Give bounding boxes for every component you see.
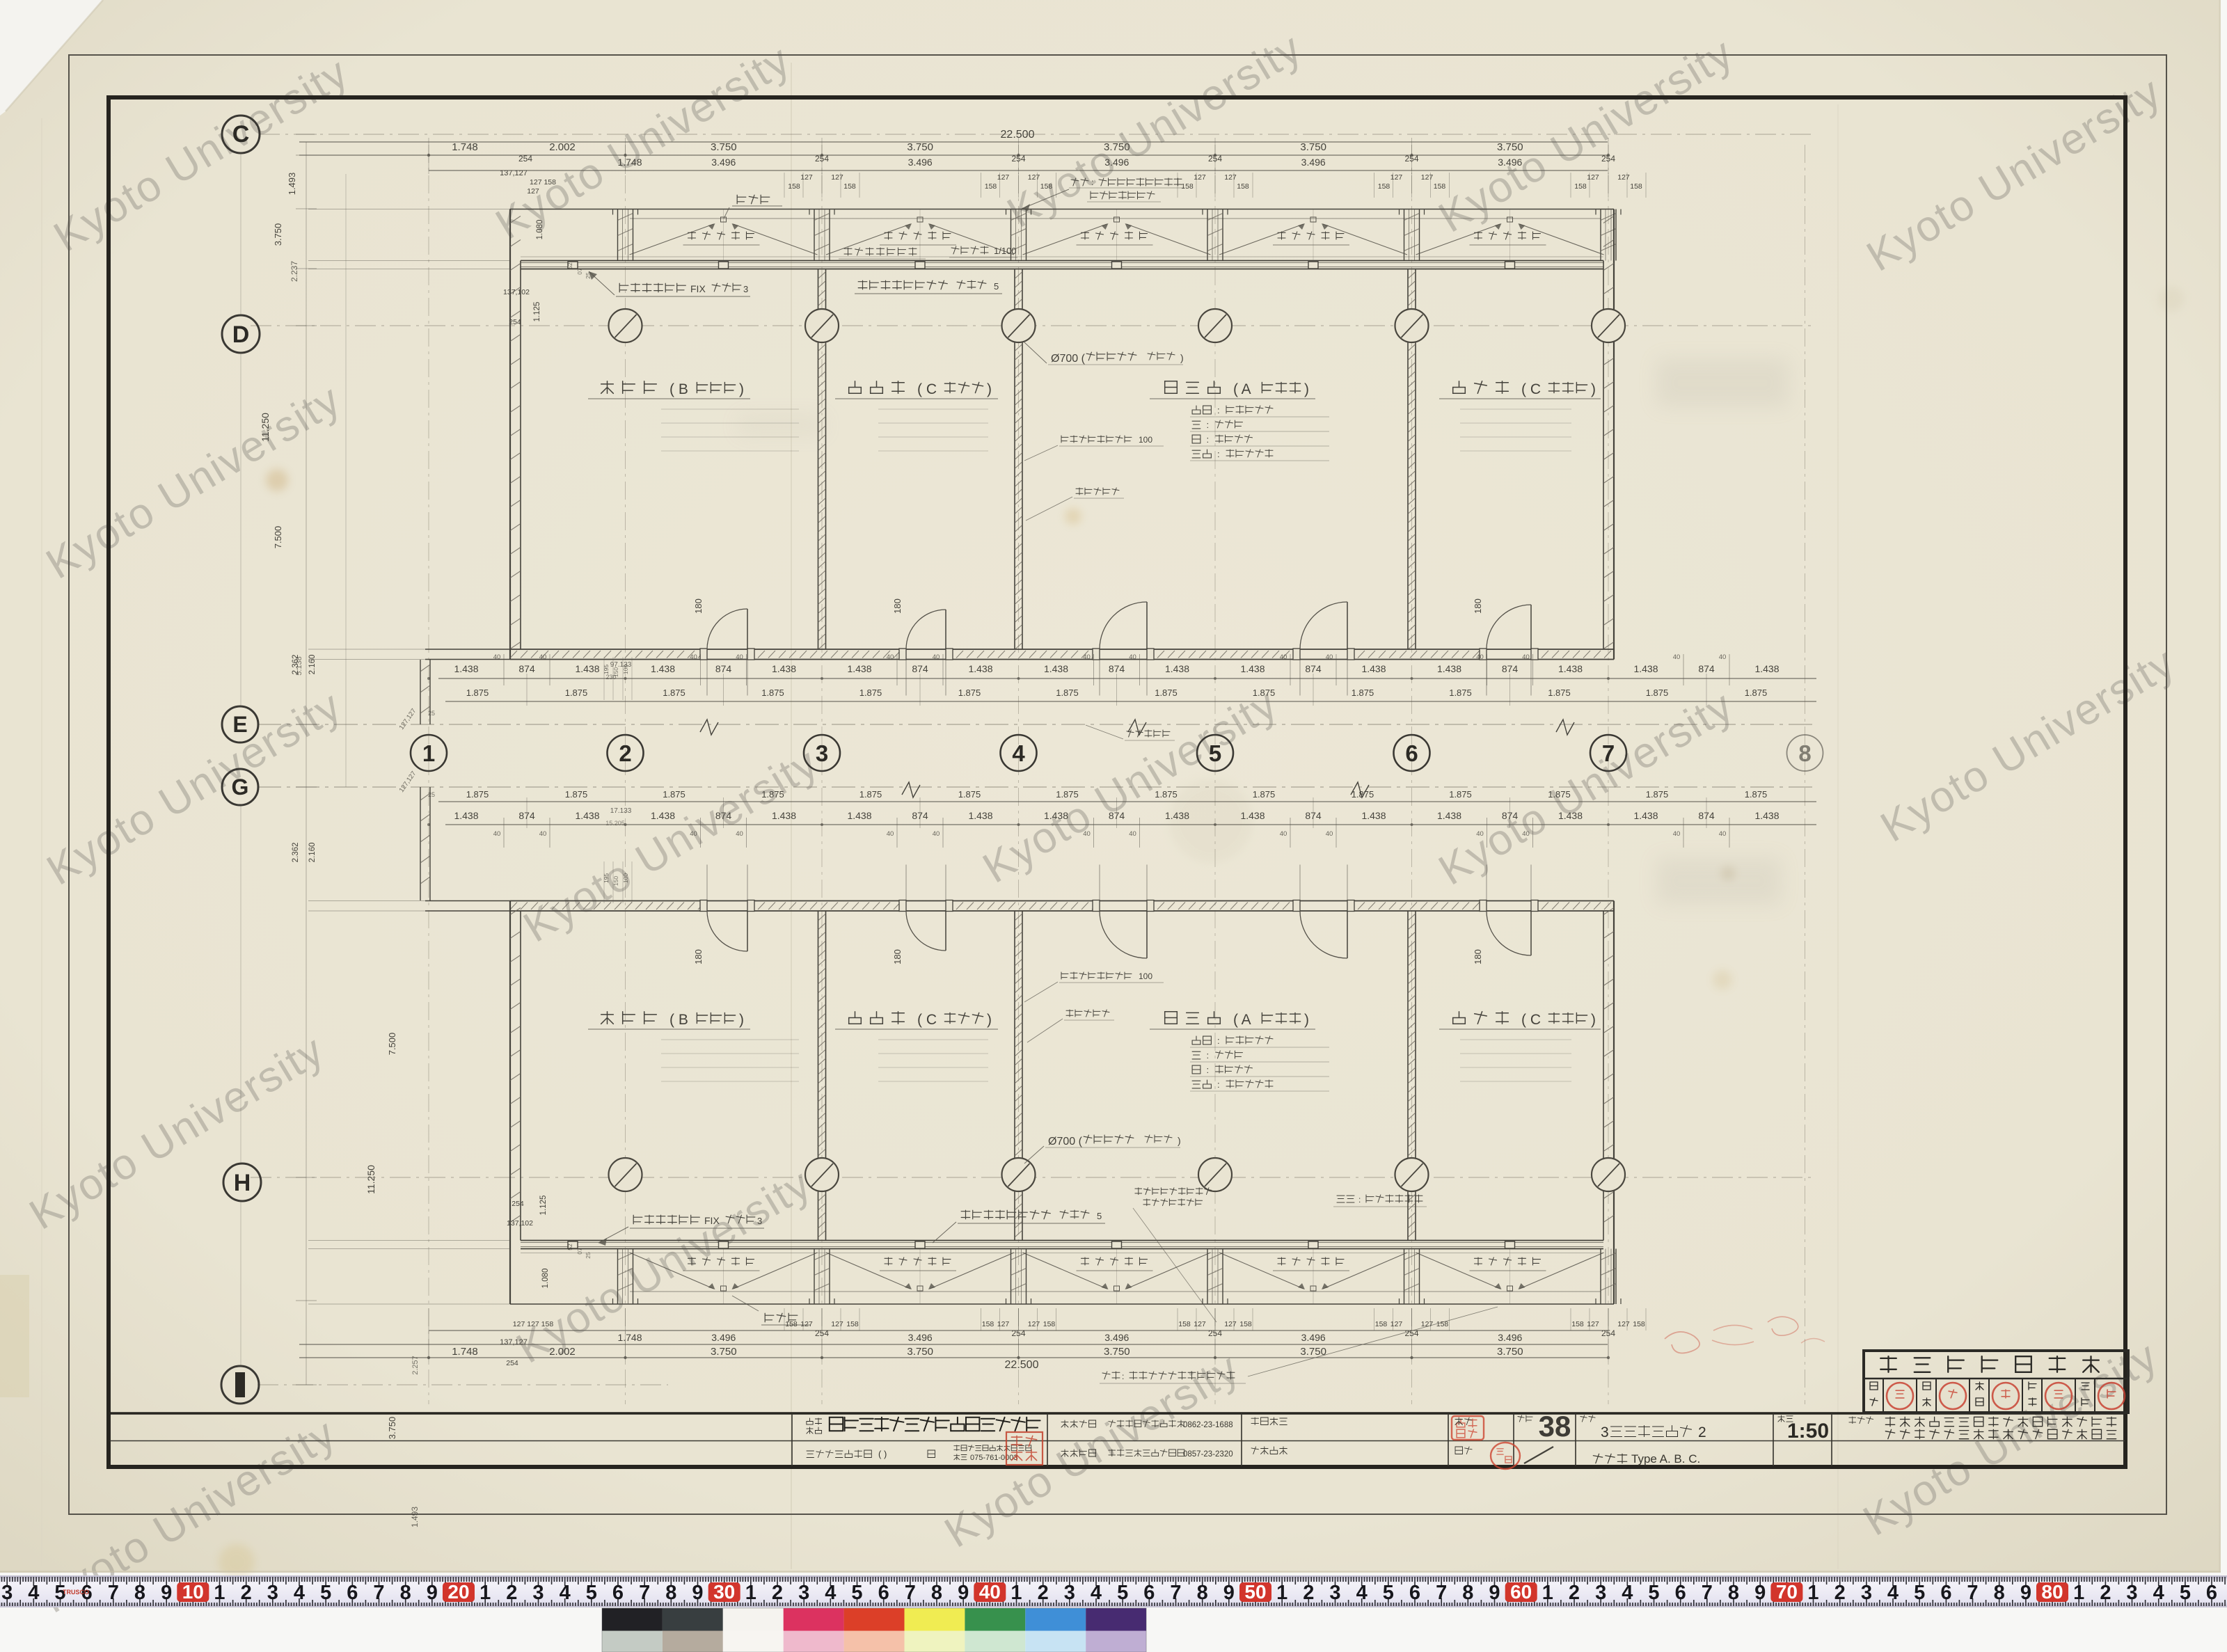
svg-text:1: 1 — [480, 1582, 491, 1604]
svg-text::: : — [1207, 434, 1210, 445]
svg-text:4: 4 — [1887, 1582, 1899, 1604]
svg-text:5: 5 — [1209, 740, 1221, 766]
svg-text:40: 40 — [1083, 653, 1091, 661]
svg-text:2: 2 — [1698, 1424, 1706, 1440]
svg-text:Type A. B. C.: Type A. B. C. — [1631, 1452, 1700, 1466]
svg-text:3.496: 3.496 — [1301, 1332, 1326, 1343]
svg-text:158: 158 — [1630, 182, 1642, 191]
svg-text:FIX: FIX — [690, 283, 706, 294]
svg-text:17.133: 17.133 — [610, 807, 632, 815]
svg-text:3.496: 3.496 — [711, 157, 736, 168]
svg-text:3: 3 — [798, 1582, 809, 1604]
svg-text:127: 127 — [831, 173, 843, 182]
svg-text:70: 70 — [1776, 1581, 1798, 1603]
svg-text:158: 158 — [1378, 182, 1390, 191]
svg-text::: : — [1217, 405, 1220, 415]
svg-text:6: 6 — [612, 1582, 624, 1604]
svg-text:4: 4 — [1622, 1582, 1633, 1604]
svg-text:874: 874 — [1109, 663, 1125, 674]
svg-text:G: G — [232, 775, 249, 800]
svg-text:1.748: 1.748 — [452, 1346, 478, 1358]
svg-text:1.438: 1.438 — [847, 663, 871, 674]
svg-text:2.002: 2.002 — [549, 141, 576, 153]
svg-text:1.875: 1.875 — [1155, 789, 1178, 800]
svg-text:50: 50 — [1244, 1581, 1266, 1603]
svg-text:127: 127 — [1390, 173, 1403, 182]
svg-text:158: 158 — [1571, 1320, 1584, 1328]
svg-text:25: 25 — [585, 272, 592, 279]
svg-text:1:50: 1:50 — [1787, 1420, 1829, 1443]
svg-text:40: 40 — [1673, 830, 1681, 838]
svg-text::: : — [1122, 1372, 1124, 1381]
svg-text:( C: ( C — [1521, 1012, 1541, 1028]
svg-text:1: 1 — [422, 740, 435, 766]
svg-text:0857-23-2320: 0857-23-2320 — [1183, 1450, 1233, 1459]
svg-text:1.438: 1.438 — [454, 810, 478, 821]
svg-text:3.750: 3.750 — [907, 141, 933, 153]
svg-text:1.438: 1.438 — [1044, 663, 1068, 674]
svg-text:25: 25 — [585, 1252, 592, 1259]
svg-text:( B: ( B — [669, 1012, 688, 1028]
svg-text:): ) — [739, 1012, 744, 1028]
svg-text:1.125: 1.125 — [539, 1196, 548, 1216]
svg-text:2: 2 — [1038, 1582, 1049, 1604]
svg-text:7.500: 7.500 — [273, 526, 283, 549]
svg-text:1.438: 1.438 — [1165, 810, 1189, 821]
svg-text:( A: ( A — [1233, 1012, 1251, 1028]
svg-text:40: 40 — [1719, 653, 1727, 661]
svg-text:874: 874 — [715, 663, 732, 674]
svg-text:3: 3 — [1861, 1582, 1872, 1604]
svg-text:1.875: 1.875 — [663, 688, 685, 698]
svg-text:22.500: 22.500 — [1001, 129, 1035, 141]
svg-text:1.875: 1.875 — [1449, 789, 1472, 800]
svg-text:3: 3 — [2126, 1582, 2137, 1604]
svg-text:C: C — [232, 121, 250, 148]
svg-text:8: 8 — [1462, 1582, 1473, 1604]
svg-text:150: 150 — [612, 876, 619, 886]
svg-text:): ) — [1591, 381, 1596, 397]
svg-text:254: 254 — [512, 1200, 524, 1208]
svg-text:40: 40 — [539, 830, 547, 838]
svg-text:6: 6 — [1675, 1582, 1686, 1604]
svg-text:3.496: 3.496 — [1498, 157, 1522, 168]
svg-text:40: 40 — [1326, 830, 1333, 838]
svg-text:158: 158 — [1043, 1320, 1056, 1328]
svg-text:3.496: 3.496 — [908, 1332, 933, 1343]
svg-text:1.875: 1.875 — [1352, 688, 1374, 698]
svg-text:6: 6 — [2206, 1582, 2217, 1604]
svg-text:11.250: 11.250 — [260, 413, 271, 442]
svg-text:4: 4 — [560, 1582, 571, 1604]
svg-text:075-761-0003: 075-761-0003 — [970, 1454, 1018, 1462]
svg-text:( C: ( C — [917, 1012, 937, 1028]
svg-text:1.748: 1.748 — [617, 157, 642, 168]
svg-text:137,102: 137,102 — [507, 1219, 533, 1228]
svg-text:254: 254 — [506, 1359, 518, 1367]
svg-text:40: 40 — [736, 830, 743, 838]
svg-text:2: 2 — [1303, 1582, 1314, 1604]
svg-text:195: 195 — [603, 665, 610, 674]
svg-text:127: 127 — [1421, 1320, 1434, 1328]
svg-text:3.750: 3.750 — [1104, 1346, 1130, 1358]
svg-text:1.875: 1.875 — [1646, 688, 1669, 698]
svg-text:3.496: 3.496 — [1301, 157, 1326, 168]
svg-text:40: 40 — [539, 653, 547, 661]
svg-text::: : — [1217, 1079, 1220, 1090]
svg-text:( C: ( C — [1521, 381, 1541, 397]
svg-text:9: 9 — [692, 1582, 703, 1604]
svg-text:1.875: 1.875 — [1646, 789, 1669, 800]
svg-text:3.496: 3.496 — [711, 1332, 736, 1343]
svg-text:137,127: 137,127 — [500, 169, 528, 177]
svg-text:4: 4 — [28, 1582, 39, 1604]
svg-text:127: 127 — [1194, 1320, 1206, 1328]
svg-text:1.875: 1.875 — [663, 789, 685, 800]
svg-text:3: 3 — [1601, 1424, 1609, 1440]
svg-text:9: 9 — [958, 1582, 969, 1604]
svg-text:FIX: FIX — [704, 1215, 720, 1226]
svg-text:1.438: 1.438 — [1633, 810, 1658, 821]
svg-text:9: 9 — [1754, 1582, 1766, 1604]
svg-text:): ) — [1591, 1012, 1596, 1028]
svg-text:1.875: 1.875 — [859, 789, 882, 800]
svg-text:1.875: 1.875 — [859, 688, 882, 698]
svg-text:40: 40 — [1719, 830, 1727, 838]
svg-text:7: 7 — [639, 1582, 650, 1604]
svg-text:3: 3 — [1064, 1582, 1075, 1604]
svg-text:158: 158 — [1178, 1320, 1191, 1328]
svg-text:3.496: 3.496 — [1104, 157, 1129, 168]
svg-text:1.438: 1.438 — [454, 663, 478, 674]
svg-text:5: 5 — [586, 1582, 597, 1604]
svg-text:6: 6 — [1405, 740, 1418, 766]
svg-text:5: 5 — [1117, 1582, 1128, 1604]
svg-text:158: 158 — [843, 182, 856, 191]
svg-text:4: 4 — [1356, 1582, 1368, 1604]
svg-text:158: 158 — [1181, 182, 1194, 191]
svg-text:8: 8 — [1197, 1582, 1208, 1604]
svg-text:1.875: 1.875 — [761, 789, 784, 800]
svg-text:9: 9 — [2020, 1582, 2031, 1604]
svg-text:127: 127 — [831, 1320, 843, 1328]
svg-text:07: 07 — [576, 1248, 583, 1255]
svg-text:3: 3 — [532, 1582, 544, 1604]
svg-text:7: 7 — [1967, 1582, 1978, 1604]
svg-text:30: 30 — [713, 1581, 735, 1603]
svg-text:40: 40 — [1522, 653, 1530, 661]
svg-text:874: 874 — [1305, 663, 1322, 674]
svg-text:1: 1 — [2073, 1582, 2084, 1604]
svg-text:40: 40 — [1280, 653, 1287, 661]
svg-text:127: 127 — [527, 187, 539, 196]
svg-text:1.438: 1.438 — [1165, 663, 1189, 674]
svg-text:158: 158 — [1237, 182, 1249, 191]
svg-text:4: 4 — [2153, 1582, 2164, 1604]
svg-text:180: 180 — [1473, 949, 1483, 964]
svg-text:40: 40 — [1326, 653, 1333, 661]
svg-text:( ): ( ) — [878, 1449, 887, 1459]
svg-text:5: 5 — [2180, 1582, 2191, 1604]
svg-text:4: 4 — [1091, 1582, 1102, 1604]
svg-text:7: 7 — [1602, 740, 1615, 766]
svg-text:8: 8 — [931, 1582, 942, 1604]
svg-text:3.496: 3.496 — [1104, 1332, 1129, 1343]
svg-text:1.080: 1.080 — [536, 220, 544, 240]
svg-text:6: 6 — [347, 1582, 358, 1604]
svg-text:180: 180 — [892, 598, 903, 614]
svg-text:25: 25 — [428, 710, 435, 717]
svg-text:40: 40 — [736, 653, 743, 661]
svg-text:7: 7 — [905, 1582, 916, 1604]
svg-text:): ) — [1178, 1135, 1181, 1146]
svg-text:158: 158 — [982, 1320, 994, 1328]
svg-text:1.875: 1.875 — [466, 688, 489, 698]
svg-text:40: 40 — [979, 1581, 1001, 1603]
svg-text:3.750: 3.750 — [711, 141, 737, 153]
svg-text:1.875: 1.875 — [1253, 688, 1276, 698]
svg-text::: : — [1217, 1035, 1220, 1046]
svg-text:2.362: 2.362 — [292, 843, 300, 863]
svg-text:2.257: 2.257 — [411, 1356, 420, 1375]
svg-text:7: 7 — [1170, 1582, 1181, 1604]
svg-text:127: 127 — [1587, 173, 1599, 182]
svg-text:127: 127 — [1194, 173, 1206, 182]
svg-text:1.875: 1.875 — [1449, 688, 1472, 698]
svg-text:3.496: 3.496 — [908, 157, 933, 168]
svg-text:2.362: 2.362 — [292, 655, 300, 675]
svg-text:4: 4 — [1012, 740, 1025, 766]
svg-text:3.750: 3.750 — [907, 1346, 933, 1358]
svg-text:158: 158 — [1375, 1320, 1388, 1328]
svg-text:127: 127 — [800, 173, 813, 182]
svg-text:20: 20 — [447, 1581, 469, 1603]
svg-text:40: 40 — [1476, 653, 1484, 661]
svg-text:180: 180 — [693, 949, 704, 964]
svg-text:3: 3 — [816, 740, 828, 766]
svg-text:1.438: 1.438 — [575, 810, 599, 821]
svg-text:1: 1 — [1542, 1582, 1553, 1604]
svg-text::: : — [1091, 177, 1093, 187]
svg-text:1.875: 1.875 — [466, 789, 489, 800]
svg-text:158: 158 — [846, 1320, 859, 1328]
svg-text:1.438: 1.438 — [1633, 663, 1658, 674]
svg-text:1.438: 1.438 — [1044, 810, 1068, 821]
svg-text:100: 100 — [622, 665, 629, 674]
svg-text:8: 8 — [400, 1582, 411, 1604]
svg-text:1.875: 1.875 — [1745, 688, 1768, 698]
svg-text:2: 2 — [241, 1582, 252, 1604]
svg-text:1.875: 1.875 — [958, 688, 981, 698]
svg-text:127: 127 — [800, 1320, 813, 1328]
svg-text:1.493: 1.493 — [287, 173, 297, 196]
svg-text:1.438: 1.438 — [1437, 810, 1461, 821]
svg-text:127 158: 127 158 — [530, 178, 556, 186]
svg-text:40: 40 — [933, 653, 940, 661]
svg-text:1.438: 1.438 — [1437, 663, 1461, 674]
svg-text:2: 2 — [1569, 1582, 1580, 1604]
svg-text:3.750: 3.750 — [1104, 141, 1130, 153]
svg-text:137,102: 137,102 — [503, 288, 530, 296]
svg-text:( C: ( C — [917, 381, 937, 397]
svg-text:1.438: 1.438 — [847, 810, 871, 821]
svg-text:254: 254 — [509, 318, 521, 326]
svg-text:40: 40 — [493, 830, 501, 838]
svg-text:H: H — [234, 1170, 251, 1196]
svg-text:): ) — [1304, 381, 1309, 397]
svg-text:4: 4 — [294, 1582, 305, 1604]
svg-text:40: 40 — [887, 653, 894, 661]
svg-text:07: 07 — [576, 268, 583, 275]
svg-text:): ) — [739, 381, 744, 397]
svg-text:2: 2 — [619, 740, 631, 766]
svg-text:127: 127 — [1028, 173, 1040, 182]
svg-text::: : — [1358, 1195, 1361, 1205]
svg-text:40: 40 — [1522, 830, 1530, 838]
svg-text:9: 9 — [427, 1582, 438, 1604]
svg-text:3: 3 — [1329, 1582, 1340, 1604]
svg-text:3: 3 — [267, 1582, 278, 1604]
svg-text:40: 40 — [493, 653, 501, 661]
svg-text:874: 874 — [1698, 663, 1715, 674]
svg-text:1.875: 1.875 — [1548, 688, 1571, 698]
svg-text:2: 2 — [1834, 1582, 1846, 1604]
svg-text:1.875: 1.875 — [565, 688, 588, 698]
svg-text:1.493: 1.493 — [410, 1507, 420, 1527]
svg-text:1.875: 1.875 — [958, 789, 981, 800]
svg-text:127: 127 — [1224, 1320, 1237, 1328]
svg-text:9: 9 — [1489, 1582, 1500, 1604]
svg-text:2.160: 2.160 — [308, 655, 317, 675]
svg-text:3.750: 3.750 — [1300, 141, 1326, 153]
svg-text:1.875: 1.875 — [1056, 688, 1079, 698]
svg-text:1: 1 — [214, 1582, 225, 1604]
svg-text:): ) — [1180, 352, 1184, 363]
svg-text:1.438: 1.438 — [1361, 810, 1386, 821]
svg-text:1/100: 1/100 — [994, 246, 1017, 256]
svg-text::: : — [1207, 1050, 1210, 1061]
svg-text:0862-23-1688: 0862-23-1688 — [1183, 1421, 1233, 1429]
svg-text:1.438: 1.438 — [1754, 663, 1779, 674]
svg-text:7: 7 — [108, 1582, 119, 1604]
svg-text:1.438: 1.438 — [1240, 663, 1265, 674]
svg-text:1.438: 1.438 — [651, 663, 675, 674]
svg-text:127: 127 — [997, 1320, 1010, 1328]
svg-text:180: 180 — [892, 949, 903, 964]
svg-text:1.438: 1.438 — [772, 810, 796, 821]
svg-text:5: 5 — [1648, 1582, 1659, 1604]
svg-text:180: 180 — [693, 598, 704, 614]
svg-text:22.500: 22.500 — [1005, 1359, 1039, 1371]
svg-text:127: 127 — [1390, 1320, 1403, 1328]
svg-text:1.438: 1.438 — [1754, 810, 1779, 821]
svg-text:127: 127 — [1587, 1320, 1599, 1328]
svg-text:158: 158 — [1434, 182, 1446, 191]
svg-text:4: 4 — [825, 1582, 836, 1604]
svg-text::: : — [1217, 449, 1220, 459]
svg-text:158: 158 — [788, 182, 800, 191]
svg-text:6: 6 — [1409, 1582, 1420, 1604]
svg-text:5: 5 — [994, 281, 999, 292]
svg-text:158: 158 — [1239, 1320, 1252, 1328]
svg-text:7: 7 — [1702, 1582, 1713, 1604]
svg-text:7: 7 — [373, 1582, 384, 1604]
svg-text:5: 5 — [1097, 1211, 1102, 1221]
svg-text:8: 8 — [1994, 1582, 2005, 1604]
svg-text:1.438: 1.438 — [1558, 663, 1583, 674]
svg-text:40: 40 — [887, 830, 894, 838]
svg-text:2.237: 2.237 — [290, 261, 299, 282]
svg-text:158: 158 — [785, 1320, 798, 1328]
svg-text:40: 40 — [1083, 830, 1091, 838]
svg-text:180: 180 — [1473, 598, 1483, 614]
svg-text:52: 52 — [566, 1244, 573, 1250]
svg-text:40: 40 — [1673, 653, 1681, 661]
svg-text:1.875: 1.875 — [1253, 789, 1276, 800]
svg-text:1.438: 1.438 — [968, 810, 992, 821]
svg-text:3.750: 3.750 — [1497, 141, 1523, 153]
svg-text:5: 5 — [1383, 1582, 1394, 1604]
svg-text:TRUSCO: TRUSCO — [63, 1589, 89, 1596]
svg-text:2: 2 — [506, 1582, 517, 1604]
svg-text:2.160: 2.160 — [308, 843, 317, 863]
svg-text:1.438: 1.438 — [1240, 810, 1265, 821]
svg-text:150: 150 — [612, 667, 619, 677]
svg-text:40: 40 — [933, 830, 940, 838]
svg-text::: : — [1207, 420, 1210, 430]
svg-text:): ) — [987, 1012, 992, 1028]
svg-text:158: 158 — [1040, 182, 1053, 191]
svg-text:40: 40 — [1280, 830, 1287, 838]
svg-text:1.875: 1.875 — [1056, 789, 1079, 800]
svg-text:5: 5 — [851, 1582, 862, 1604]
svg-text:40: 40 — [1129, 830, 1136, 838]
svg-text:874: 874 — [912, 663, 928, 674]
svg-text:158: 158 — [1633, 1320, 1645, 1328]
svg-text:11.250: 11.250 — [365, 1165, 377, 1194]
svg-text:3.750: 3.750 — [1497, 1346, 1523, 1358]
svg-text:1.438: 1.438 — [772, 663, 796, 674]
svg-text:1.875: 1.875 — [1745, 789, 1768, 800]
svg-text:Ø700 (: Ø700 ( — [1048, 1136, 1083, 1147]
svg-text:9: 9 — [161, 1582, 172, 1604]
svg-text:6: 6 — [878, 1582, 889, 1604]
svg-text:Ø700 (: Ø700 ( — [1051, 353, 1086, 365]
svg-text:40: 40 — [1476, 830, 1484, 838]
svg-text:8: 8 — [134, 1582, 145, 1604]
svg-text:3.750: 3.750 — [711, 1346, 737, 1358]
svg-text:7: 7 — [1436, 1582, 1447, 1604]
svg-text:9: 9 — [1223, 1582, 1235, 1604]
svg-text:2: 2 — [772, 1582, 783, 1604]
svg-text:3.750: 3.750 — [273, 223, 283, 246]
svg-text:1.080: 1.080 — [541, 1269, 550, 1289]
svg-text:40: 40 — [690, 653, 697, 661]
svg-text:1: 1 — [1011, 1582, 1022, 1604]
svg-text:38: 38 — [1539, 1410, 1571, 1443]
svg-text:8: 8 — [665, 1582, 676, 1604]
svg-text:2: 2 — [2100, 1582, 2111, 1604]
svg-text:3: 3 — [757, 1216, 762, 1226]
svg-text:874: 874 — [1502, 663, 1519, 674]
svg-text:): ) — [1304, 1012, 1309, 1028]
svg-text:127 127 158: 127 127 158 — [513, 1320, 554, 1328]
svg-text:1.125: 1.125 — [533, 302, 541, 322]
svg-text:137,127: 137,127 — [500, 1338, 528, 1347]
svg-text:D: D — [232, 321, 250, 348]
svg-text:1.438: 1.438 — [1558, 810, 1583, 821]
svg-text:15.205: 15.205 — [605, 820, 625, 827]
